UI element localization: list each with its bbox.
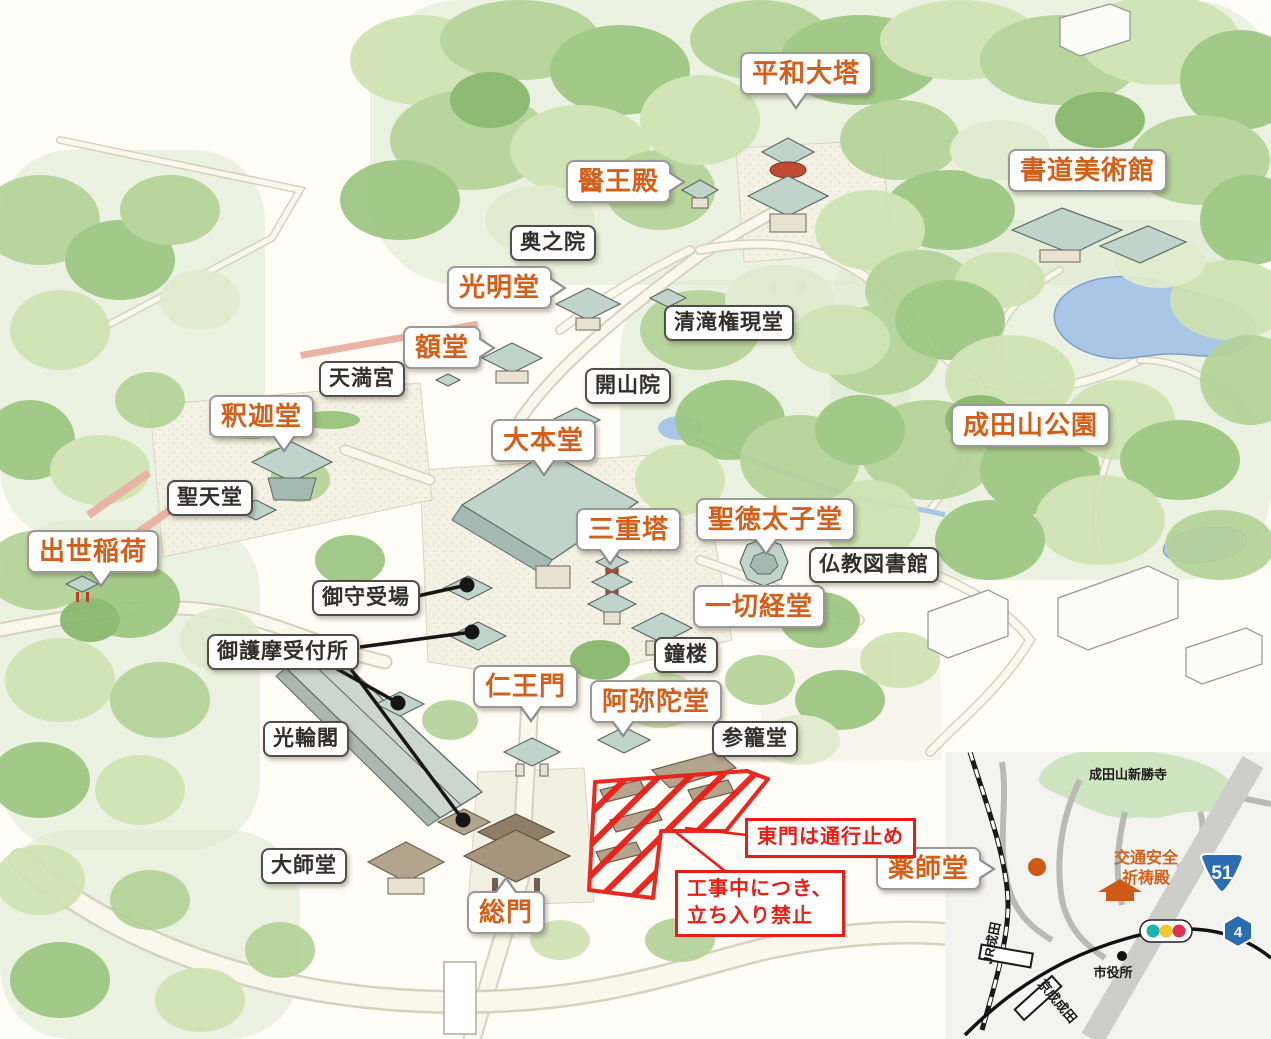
route-51-number: 51 <box>1211 863 1233 884</box>
label-bukkyo-library: 仏教図書館 <box>809 547 939 583</box>
label-shotoku-taishido: 聖徳太子堂 <box>696 498 855 541</box>
label-gakudo: 額堂 <box>403 326 481 369</box>
label-shodo-museum: 書道美術館 <box>1008 149 1167 192</box>
label-omamori-ukeba: 御守受場 <box>312 580 420 616</box>
label-shusse-inari: 出世稲荷 <box>27 530 159 573</box>
notice-construction-line2: 立ち入り禁止 <box>687 903 833 930</box>
notice-construction-line1: 工事中につき、 <box>687 876 833 903</box>
label-sanjunoto: 三重塔 <box>576 508 681 551</box>
label-okunoin: 奥之院 <box>510 225 596 261</box>
label-seiryu-gongendo: 清滝権現堂 <box>664 305 794 341</box>
label-sanrodo: 参籠堂 <box>712 721 798 757</box>
label-komyodo: 光明堂 <box>447 266 552 309</box>
label-kaisanin: 開山院 <box>585 368 671 404</box>
inset-kitoden-label-line2: 祈祷殿 <box>1122 868 1171 887</box>
label-ogoma-uketsukesho: 御護摩受付所 <box>207 634 359 670</box>
label-shakado: 釈迦堂 <box>209 395 314 438</box>
label-korinkaku: 光輪閣 <box>263 721 349 757</box>
notice-construction: 工事中につき、 立ち入り禁止 <box>675 870 845 937</box>
naritasan-temple-map: 成田山新勝寺 交通安全 祈祷殿 51 4 市役所 JR成田 京成成田 <box>0 0 1271 1039</box>
label-io-den: 醫王殿 <box>566 160 671 203</box>
label-somon: 総門 <box>467 891 545 934</box>
label-tenmangu: 天満宮 <box>319 361 405 397</box>
inset-kitoden-label-line1: 交通安全 <box>1114 848 1179 867</box>
inset-temple-label: 成田山新勝寺 <box>1089 767 1167 782</box>
label-amidado: 阿弥陀堂 <box>590 680 722 723</box>
inset-city-hall-label: 市役所 <box>1093 965 1132 980</box>
label-heiwa-daito: 平和大塔 <box>740 52 872 95</box>
label-niomon: 仁王門 <box>473 665 578 708</box>
label-shotendo: 聖天堂 <box>167 480 253 516</box>
access-inset-map: 成田山新勝寺 交通安全 祈祷殿 51 4 市役所 JR成田 京成成田 <box>945 750 1271 1039</box>
city-hall-dot <box>1117 951 1127 961</box>
yakushido-marker-dot <box>1028 858 1046 876</box>
prefectural-route-hexagon-icon: 4 <box>1224 915 1252 947</box>
traffic-light-icon <box>1140 920 1192 942</box>
label-naritasan-park: 成田山公園 <box>951 404 1110 447</box>
notice-east-gate-closed: 東門は通行止め <box>745 818 916 858</box>
label-daishido: 大師堂 <box>261 848 347 884</box>
label-shoro: 鐘楼 <box>654 637 718 673</box>
label-issaikyodo: 一切経堂 <box>693 585 825 628</box>
route-4-number: 4 <box>1234 924 1243 941</box>
label-daihondo: 大本堂 <box>491 419 596 462</box>
